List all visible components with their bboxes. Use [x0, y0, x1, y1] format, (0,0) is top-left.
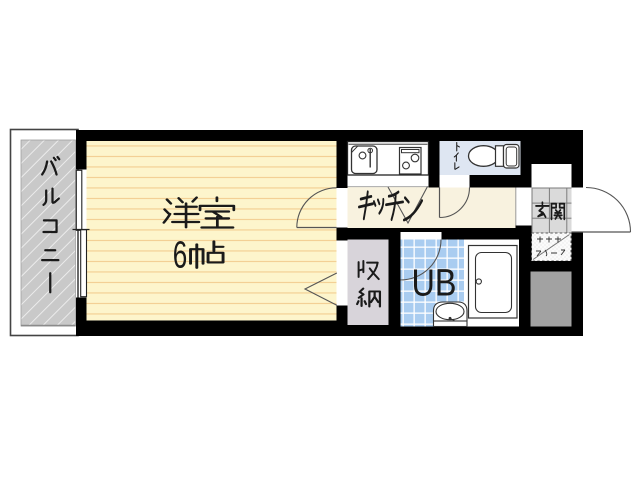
- svg-text:UB: UB: [412, 263, 457, 305]
- svg-text:6: 6: [173, 235, 188, 277]
